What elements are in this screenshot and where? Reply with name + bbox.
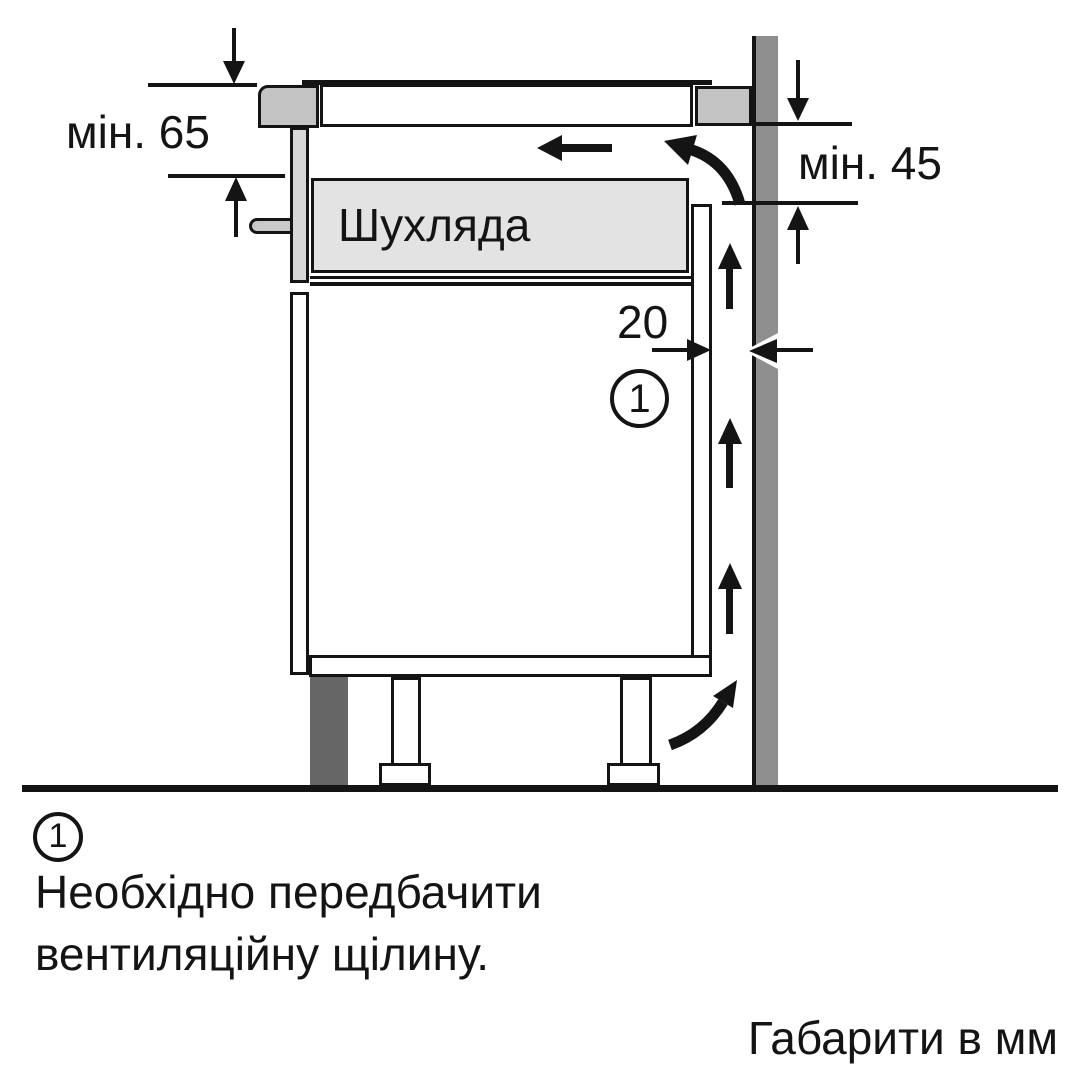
right-leg-foot	[607, 763, 660, 786]
dim-arrow-left-down-shaft	[232, 28, 236, 65]
worktop-front-edge	[258, 85, 319, 128]
callout-1-diagram: 1	[610, 369, 669, 428]
cabinet-bottom-board	[309, 655, 712, 677]
wall-pointer-left-icon	[749, 339, 777, 363]
cabinet-side-panel-inner-line	[691, 204, 694, 655]
left-leg-foot	[379, 763, 431, 786]
hob-body	[320, 84, 693, 127]
legend-note-line2: вентиляційну щілину.	[35, 928, 489, 981]
drawer-label: Шухляда	[314, 199, 530, 252]
units-note: Габарити в мм	[600, 1012, 1058, 1065]
cabinet-front-panel	[290, 292, 309, 675]
callout-1-diagram-number: 1	[628, 376, 650, 422]
worktop-rear-edge	[695, 86, 752, 126]
floor-line	[22, 785, 1058, 792]
dim-arrow-left-up-shaft	[234, 199, 238, 237]
gap-pointer-shaft	[652, 348, 688, 352]
dim-line-right-lower	[722, 201, 858, 205]
hob-top-surface-line	[302, 80, 712, 85]
airflow-up-arrow-3-shaft	[726, 587, 733, 634]
dim-label-min-45: мін. 45	[798, 137, 942, 190]
left-leg-shaft	[391, 677, 421, 766]
cabinet-side-panel-top-edge	[691, 204, 712, 207]
appliance-installation-diagram: Шухляда мін. 65 мін. 45 20 1	[0, 0, 1080, 1080]
airflow-up-arrow-1-icon	[718, 243, 742, 269]
right-leg-shaft	[620, 677, 652, 766]
plinth-toe-kick	[310, 677, 348, 785]
drawer-rail-upper	[310, 276, 691, 279]
dim-arrow-left-down-icon	[223, 61, 245, 84]
gap-pointer-right-icon	[687, 339, 711, 361]
dim-arrow-right-up-shaft	[796, 230, 800, 264]
dim-arrow-left-up-icon	[225, 177, 247, 201]
dim-label-gap-20: 20	[617, 296, 668, 349]
drawer-rail-lower	[310, 282, 691, 286]
dim-label-min-65: мін. 65	[66, 106, 210, 159]
wall-pointer-shaft	[776, 348, 813, 352]
airflow-left-arrow-shaft	[560, 144, 612, 152]
callout-1-legend-number: 1	[49, 817, 68, 856]
dim-line-right-upper	[752, 122, 852, 126]
dim-arrow-right-up-icon	[787, 206, 809, 230]
airflow-left-arrow-icon	[537, 135, 562, 161]
drawer-box: Шухляда	[311, 178, 689, 273]
airflow-up-arrow-2-icon	[718, 418, 742, 444]
airflow-up-arrow-1-shaft	[726, 267, 733, 309]
cabinet-side-panel-outer-line	[709, 204, 712, 677]
legend-note-line1: Необхідно передбачити	[35, 866, 542, 919]
callout-1-legend: 1	[33, 812, 83, 862]
dim-arrow-right-down-shaft	[796, 60, 800, 100]
dim-arrow-right-down-icon	[787, 98, 809, 121]
airflow-up-arrow-3-icon	[718, 563, 742, 589]
wall-section	[752, 36, 778, 786]
fixing-screw-peg	[249, 218, 293, 234]
airflow-curved-arrow-bottom-icon	[670, 680, 737, 745]
hob-housing-side	[290, 127, 309, 283]
airflow-up-arrow-2-shaft	[726, 442, 733, 488]
